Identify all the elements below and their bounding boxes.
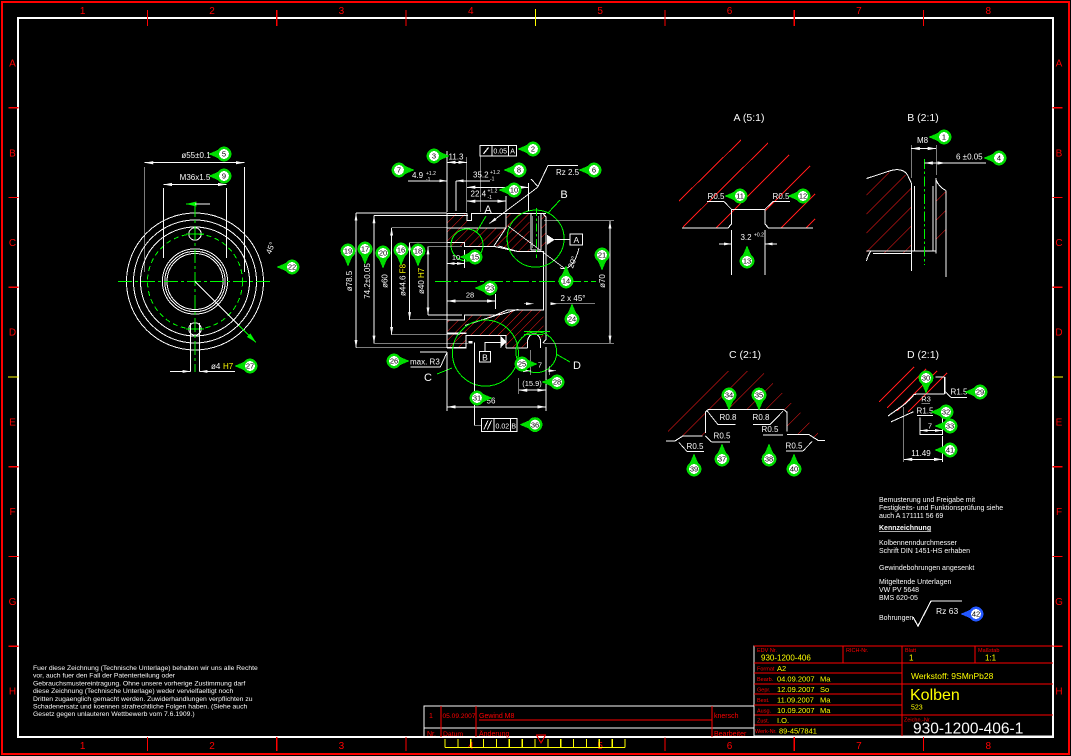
svg-text:37: 37 [718, 455, 726, 464]
svg-text:Nr.: Nr. [427, 731, 436, 738]
svg-text:8: 8 [517, 166, 521, 175]
svg-text:17: 17 [361, 245, 369, 254]
svg-text:5: 5 [597, 6, 603, 17]
svg-text:G: G [9, 597, 17, 608]
svg-text:4: 4 [468, 6, 474, 17]
svg-text:VW PV 5648: VW PV 5648 [879, 587, 919, 594]
svg-text:35: 35 [755, 391, 763, 400]
svg-text:10: 10 [510, 186, 518, 195]
svg-text:+1.2: +1.2 [488, 189, 498, 195]
svg-text:4.9: 4.9 [412, 171, 424, 180]
svg-text:2: 2 [531, 145, 535, 154]
svg-text:M8: M8 [917, 136, 929, 145]
svg-text:15: 15 [471, 253, 479, 262]
svg-text:12: 12 [799, 192, 807, 201]
svg-text:1: 1 [909, 654, 914, 663]
svg-text:G: G [1055, 597, 1063, 608]
svg-text:R0.8: R0.8 [720, 413, 737, 422]
svg-text:ø55±0.1: ø55±0.1 [181, 151, 211, 160]
svg-text:D: D [9, 328, 16, 339]
svg-text:33: 33 [946, 422, 954, 431]
svg-text:A: A [9, 59, 16, 70]
svg-text:B: B [560, 189, 567, 201]
svg-text:+0.2: +0.2 [754, 233, 764, 239]
svg-text:Dritten zugaenglich gemacht we: Dritten zugaenglich gemacht werden. Zuwi… [33, 696, 253, 703]
svg-text:7: 7 [856, 6, 862, 17]
svg-text:B: B [511, 423, 516, 430]
svg-text:6 ±0.05: 6 ±0.05 [956, 153, 983, 162]
svg-text:34: 34 [725, 391, 733, 400]
svg-text:11: 11 [736, 192, 744, 201]
svg-text:A2: A2 [777, 664, 786, 673]
svg-text:6: 6 [592, 166, 596, 175]
svg-text:3.2: 3.2 [740, 233, 752, 242]
svg-text:vor, auch fuer den Fall der Pa: vor, auch fuer den Fall der Patenterteil… [33, 673, 176, 680]
svg-text:RICH-Nr.: RICH-Nr. [846, 648, 869, 654]
svg-text:5: 5 [222, 150, 226, 159]
svg-text:523: 523 [911, 705, 923, 712]
svg-text:11.3: 11.3 [449, 153, 465, 162]
svg-text:(15.9): (15.9) [522, 379, 542, 388]
svg-text:R0.5: R0.5 [714, 432, 731, 441]
svg-text:6: 6 [727, 741, 733, 752]
svg-text:Kolben: Kolben [910, 687, 960, 704]
svg-text:Datum: Datum [443, 731, 463, 738]
svg-text:5: 5 [597, 741, 603, 752]
svg-text:So: So [820, 685, 829, 694]
svg-text:3: 3 [432, 152, 436, 161]
svg-text:20: 20 [379, 249, 387, 258]
svg-text:3: 3 [339, 741, 345, 752]
svg-text:B: B [482, 352, 488, 362]
svg-text:C (2:1): C (2:1) [729, 349, 761, 361]
svg-text:Rz 63: Rz 63 [936, 606, 958, 616]
svg-text:9: 9 [222, 172, 226, 181]
svg-text:knersch: knersch [714, 713, 739, 720]
svg-text:25: 25 [518, 360, 526, 369]
svg-text:C: C [9, 238, 16, 249]
svg-text:1: 1 [80, 6, 86, 17]
svg-text:Gebrauchsmustereintragung. Ohn: Gebrauchsmustereintragung. Ohne unsere v… [33, 680, 245, 687]
svg-text:ø4: ø4 [211, 362, 221, 371]
svg-text:29: 29 [976, 388, 984, 397]
svg-text:24: 24 [568, 315, 576, 324]
svg-text:41: 41 [946, 446, 954, 455]
svg-text:diese Zeichnung (Technische Un: diese Zeichnung (Technische Unterlage) w… [33, 688, 233, 695]
svg-text:R1.5: R1.5 [917, 407, 934, 416]
svg-text:35.2: 35.2 [473, 171, 489, 180]
svg-text:Kolbennenndurchmesser: Kolbennenndurchmesser [879, 540, 957, 547]
svg-text:31: 31 [473, 394, 481, 403]
svg-text:R0.5: R0.5 [708, 192, 725, 201]
svg-text:1: 1 [429, 713, 433, 720]
svg-text:+1.2: +1.2 [490, 170, 500, 176]
svg-text:14: 14 [562, 277, 570, 286]
svg-text:16: 16 [397, 246, 405, 255]
svg-text:930-1200-406-1: 930-1200-406-1 [913, 721, 1023, 738]
svg-text:F: F [1056, 507, 1062, 518]
svg-text:11.09.2007: 11.09.2007 [777, 696, 814, 705]
svg-text:7: 7 [856, 741, 862, 752]
svg-text:I.O.: I.O. [777, 716, 789, 725]
svg-text:Rz 2.5: Rz 2.5 [556, 168, 580, 177]
svg-text:A (5:1): A (5:1) [734, 112, 765, 124]
svg-text:Bemusterung und Freigabe mit: Bemusterung und Freigabe mit [879, 497, 975, 504]
svg-text:22: 22 [288, 263, 296, 272]
svg-text:R0.5: R0.5 [786, 442, 803, 451]
svg-text:39: 39 [690, 465, 698, 474]
svg-text:38: 38 [765, 455, 773, 464]
svg-text:Gewind M8: Gewind M8 [479, 713, 515, 720]
svg-text:A: A [510, 149, 515, 156]
svg-text:ø40 H7: ø40 H7 [417, 267, 426, 294]
svg-text:Best.: Best. [757, 698, 770, 704]
svg-text:Gesetz gegen unlauteren Wettbe: Gesetz gegen unlauteren Wettbewerb vom 7… [33, 711, 195, 718]
svg-text:Ma: Ma [820, 696, 831, 705]
svg-text:E: E [9, 417, 16, 428]
svg-text:B: B [1056, 149, 1063, 160]
svg-text:30: 30 [922, 374, 930, 383]
svg-text:R3: R3 [921, 395, 931, 404]
svg-text:2: 2 [209, 6, 215, 17]
svg-text:R0.5: R0.5 [687, 442, 704, 451]
svg-text:Gepr.: Gepr. [757, 688, 771, 694]
svg-text:D (2:1): D (2:1) [907, 349, 939, 361]
svg-text:C: C [424, 372, 432, 384]
svg-text:A: A [1056, 59, 1063, 70]
svg-text:2: 2 [209, 741, 215, 752]
svg-text:B: B [9, 149, 16, 160]
svg-text:Änderung: Änderung [479, 730, 509, 738]
svg-text:10: 10 [452, 253, 460, 262]
svg-text:7: 7 [397, 166, 401, 175]
svg-text:E: E [1056, 417, 1063, 428]
svg-text:-1: -1 [488, 195, 493, 201]
svg-text:ø60: ø60 [381, 274, 390, 288]
svg-text:Bearbeiter: Bearbeiter [714, 731, 747, 738]
svg-text:1: 1 [942, 133, 946, 142]
svg-text:Ausg.: Ausg. [757, 709, 772, 715]
svg-text:32: 32 [942, 408, 950, 417]
svg-text:R0.5: R0.5 [773, 192, 790, 201]
svg-text:89-45/7841: 89-45/7841 [779, 727, 817, 736]
svg-text:28: 28 [466, 291, 474, 300]
svg-text:19: 19 [344, 247, 352, 256]
svg-text:H: H [9, 687, 16, 698]
svg-text:4: 4 [997, 154, 1001, 163]
svg-text:6: 6 [727, 6, 733, 17]
svg-text:Festigkeits- und Funktionsprüf: Festigkeits- und Funktionsprüfung siehe [879, 505, 1003, 512]
svg-text:-1: -1 [490, 177, 495, 183]
svg-text:04.09.2007: 04.09.2007 [777, 675, 815, 684]
svg-text:27: 27 [246, 362, 254, 371]
svg-text:Kennzeichnung: Kennzeichnung [879, 525, 931, 532]
svg-text:28: 28 [553, 378, 561, 387]
svg-text:M36x1.5: M36x1.5 [180, 173, 211, 182]
svg-text:2 x 45°: 2 x 45° [561, 294, 586, 303]
svg-text:D: D [1055, 328, 1062, 339]
svg-text:Bearb.: Bearb. [757, 677, 774, 683]
svg-text:18: 18 [414, 247, 422, 256]
svg-text:Ma: Ma [820, 675, 831, 684]
svg-text:22.4: 22.4 [471, 190, 487, 199]
svg-text:BMS 620-05: BMS 620-05 [879, 595, 918, 602]
svg-text:40: 40 [790, 465, 798, 474]
svg-text:Fuer diese Zeichnung (Technisc: Fuer diese Zeichnung (Technische Unterla… [33, 665, 258, 672]
svg-text:74.2±0.05: 74.2±0.05 [363, 263, 372, 299]
svg-text:H7: H7 [223, 362, 234, 371]
svg-text:-1: -1 [426, 177, 431, 183]
svg-text:0.02: 0.02 [495, 423, 509, 430]
svg-text:11.49: 11.49 [911, 449, 931, 458]
svg-text:05.09.2007: 05.09.2007 [443, 713, 476, 720]
svg-text:Werk-Nr.: Werk-Nr. [755, 729, 777, 735]
svg-text:B (2:1): B (2:1) [907, 112, 939, 124]
svg-text:0.05: 0.05 [493, 149, 507, 156]
svg-text:7: 7 [928, 422, 932, 431]
svg-text:1: 1 [80, 741, 86, 752]
svg-text:ø70: ø70 [598, 274, 607, 288]
svg-text:D: D [573, 360, 581, 372]
svg-text:930-1200-406: 930-1200-406 [761, 654, 811, 663]
svg-text:Format: Format [757, 667, 775, 673]
svg-text:A: A [573, 235, 579, 245]
svg-text:Zust.: Zust. [757, 719, 770, 725]
svg-text:10.09.2007: 10.09.2007 [777, 706, 815, 715]
svg-text:R0.5: R0.5 [762, 425, 779, 434]
svg-text:F: F [9, 507, 15, 518]
svg-text:26: 26 [390, 357, 398, 366]
svg-text:3: 3 [339, 6, 345, 17]
svg-text:Werkstoff: 9SMnPb28: Werkstoff: 9SMnPb28 [911, 671, 994, 681]
svg-text:8: 8 [986, 741, 992, 752]
svg-text:8: 8 [986, 6, 992, 17]
svg-text:auch A 171111 56 69: auch A 171111 56 69 [879, 513, 943, 520]
svg-text:Mitgeltende Unterlagen: Mitgeltende Unterlagen [879, 579, 951, 586]
svg-text:36: 36 [531, 420, 539, 429]
svg-text:Gewindebohrungen angesenkt: Gewindebohrungen angesenkt [879, 565, 974, 572]
svg-text:max. R3: max. R3 [410, 358, 440, 367]
svg-text:21: 21 [598, 251, 606, 260]
svg-text:12.09.2007: 12.09.2007 [777, 685, 815, 694]
svg-text:13: 13 [743, 257, 751, 266]
svg-text:H: H [1055, 687, 1062, 698]
svg-text:Schrift DIN 1451-HS erhaben: Schrift DIN 1451-HS erhaben [879, 548, 970, 555]
svg-text:Schadenersatz und koennen stra: Schadenersatz und koennen strafrechtlich… [33, 704, 247, 711]
svg-text:1:1: 1:1 [985, 654, 997, 663]
svg-text:7: 7 [538, 361, 542, 370]
svg-text:C: C [1055, 238, 1062, 249]
svg-text:23: 23 [486, 284, 494, 293]
svg-text:42: 42 [972, 610, 980, 619]
svg-text:R0.8: R0.8 [753, 413, 770, 422]
svg-text:A: A [484, 204, 492, 216]
svg-text:Bohrungen: Bohrungen [879, 615, 913, 622]
svg-text:ø44.6 F8: ø44.6 F8 [399, 263, 408, 296]
svg-text:Ma: Ma [820, 706, 831, 715]
svg-text:ø78.5: ø78.5 [345, 270, 354, 291]
